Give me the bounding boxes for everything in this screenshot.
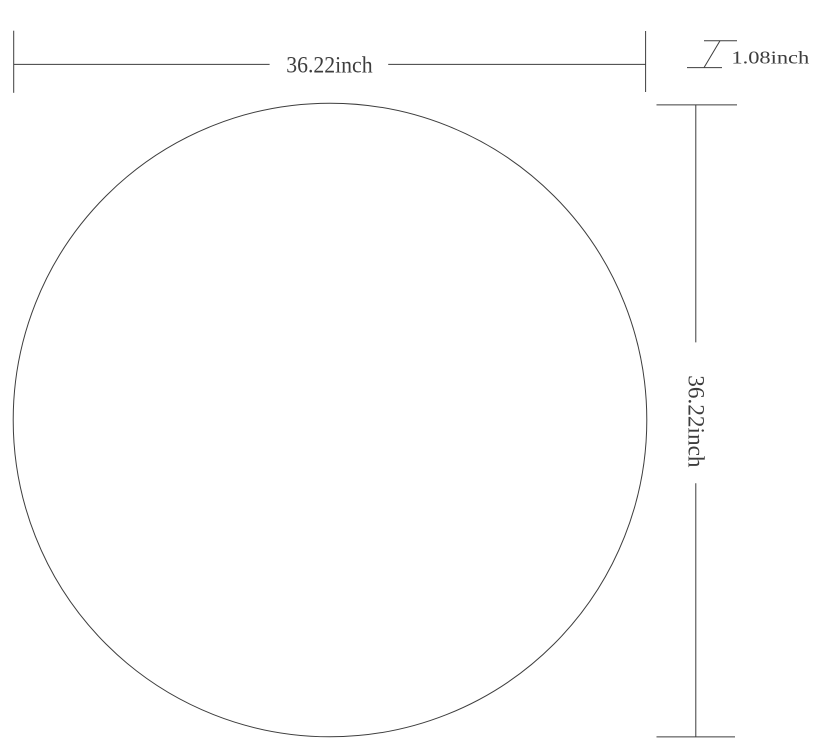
svg-text:1.08inch: 1.08inch [731,48,809,68]
svg-text:36.22inch: 36.22inch [683,375,708,468]
svg-text:36.22inch: 36.22inch [286,53,373,78]
